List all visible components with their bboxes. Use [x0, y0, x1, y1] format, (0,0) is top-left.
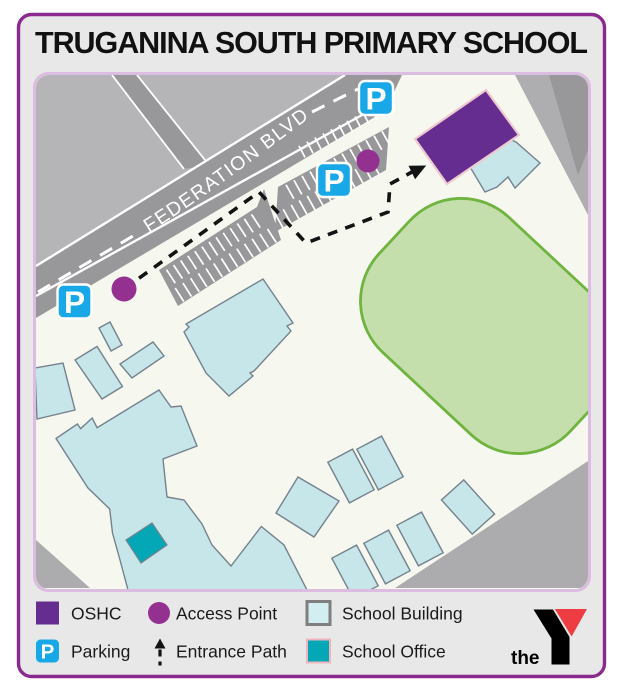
svg-text:OSHC: OSHC	[71, 604, 122, 624]
svg-text:the: the	[511, 648, 540, 669]
svg-text:School Office: School Office	[342, 642, 446, 662]
svg-text:P: P	[64, 284, 85, 320]
svg-text:Entrance Path: Entrance Path	[176, 642, 287, 662]
svg-text:P: P	[323, 163, 344, 199]
svg-text:Parking: Parking	[71, 642, 130, 662]
svg-text:School Building: School Building	[342, 604, 463, 624]
svg-text:TRUGANINA SOUTH PRIMARY SCHOOL: TRUGANINA SOUTH PRIMARY SCHOOL	[35, 26, 587, 60]
svg-text:P: P	[41, 640, 55, 663]
svg-text:P: P	[365, 81, 386, 117]
svg-text:Access Point: Access Point	[176, 604, 277, 624]
